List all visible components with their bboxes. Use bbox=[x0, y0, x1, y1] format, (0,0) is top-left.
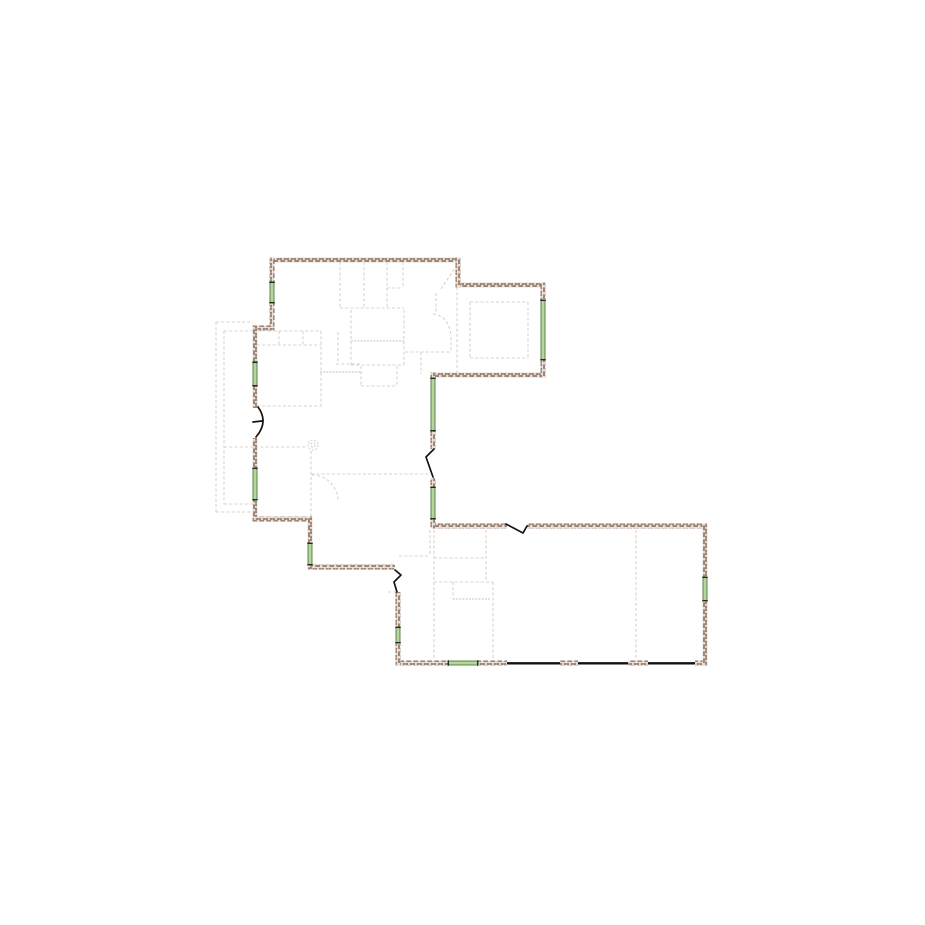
wall-segment bbox=[270, 303, 275, 326]
door-symbol bbox=[426, 449, 434, 477]
window-symbol bbox=[253, 469, 257, 500]
door-symbol bbox=[394, 570, 401, 592]
reference-door-arc bbox=[433, 314, 451, 336]
window-cap bbox=[448, 660, 449, 666]
reference-floor-lines bbox=[216, 262, 636, 661]
wall-segment bbox=[253, 500, 258, 517]
window-cap bbox=[395, 642, 401, 643]
window-cap bbox=[307, 564, 313, 565]
wall-segment bbox=[308, 565, 313, 570]
window-symbol bbox=[449, 661, 478, 665]
door-symbols bbox=[253, 407, 527, 592]
wall-segment bbox=[253, 438, 258, 468]
door-symbol bbox=[253, 407, 263, 437]
window-cap bbox=[395, 627, 401, 628]
wall-segment bbox=[253, 326, 258, 362]
window-symbol bbox=[703, 578, 707, 601]
wall-segment bbox=[456, 283, 546, 288]
reference-fixture-circle bbox=[308, 440, 318, 450]
wall-segment bbox=[431, 373, 436, 379]
window-cap bbox=[430, 518, 436, 519]
wall-segment bbox=[431, 431, 436, 449]
wall-segment bbox=[431, 478, 436, 487]
wall-segment bbox=[527, 524, 708, 529]
wall-segment bbox=[396, 661, 449, 666]
reference-fixture-circle bbox=[311, 443, 315, 447]
wall-segment bbox=[270, 258, 275, 283]
window-cap bbox=[269, 302, 275, 303]
window-cap bbox=[252, 362, 258, 363]
window-cap bbox=[477, 660, 478, 666]
wall-segment bbox=[703, 601, 708, 666]
wall-segment bbox=[431, 373, 546, 378]
window-cap bbox=[430, 378, 436, 379]
wall-segment bbox=[308, 517, 313, 544]
floorplan-page bbox=[0, 0, 925, 925]
window-symbol bbox=[253, 363, 257, 386]
reference-door-arc bbox=[312, 475, 338, 501]
wall-segment bbox=[396, 592, 401, 627]
wall-segment bbox=[253, 386, 258, 408]
window-cap bbox=[307, 543, 313, 544]
window-cap bbox=[430, 487, 436, 488]
window-cap bbox=[430, 430, 436, 431]
window-cap bbox=[252, 385, 258, 386]
window-symbol bbox=[270, 283, 274, 303]
window-cap bbox=[252, 499, 258, 500]
wall-segment bbox=[703, 524, 708, 578]
exterior-walls bbox=[253, 258, 708, 666]
reference-wall-line bbox=[441, 268, 455, 289]
window-cap bbox=[252, 468, 258, 469]
wall-segment bbox=[628, 661, 648, 666]
wall-segment bbox=[456, 258, 461, 288]
window-cap bbox=[540, 300, 546, 301]
window-symbol bbox=[308, 544, 312, 565]
wall-segment bbox=[270, 258, 460, 263]
window-cap bbox=[702, 600, 708, 601]
wall-segment bbox=[308, 565, 396, 570]
wall-segment bbox=[478, 661, 507, 666]
wall-segment bbox=[560, 661, 578, 666]
wall-segment bbox=[253, 517, 313, 522]
window-symbols bbox=[252, 282, 708, 666]
window-symbol bbox=[396, 628, 400, 643]
window-symbol bbox=[431, 379, 435, 431]
window-symbol bbox=[431, 488, 435, 519]
window-cap bbox=[269, 282, 275, 283]
window-cap bbox=[540, 359, 546, 360]
door-symbol bbox=[506, 524, 527, 533]
wall-segment bbox=[396, 643, 401, 666]
floorplan-canvas[interactable] bbox=[0, 0, 925, 925]
wall-segment bbox=[431, 524, 508, 529]
window-cap bbox=[702, 577, 708, 578]
wall-segment bbox=[431, 519, 436, 529]
window-symbol bbox=[541, 301, 545, 360]
